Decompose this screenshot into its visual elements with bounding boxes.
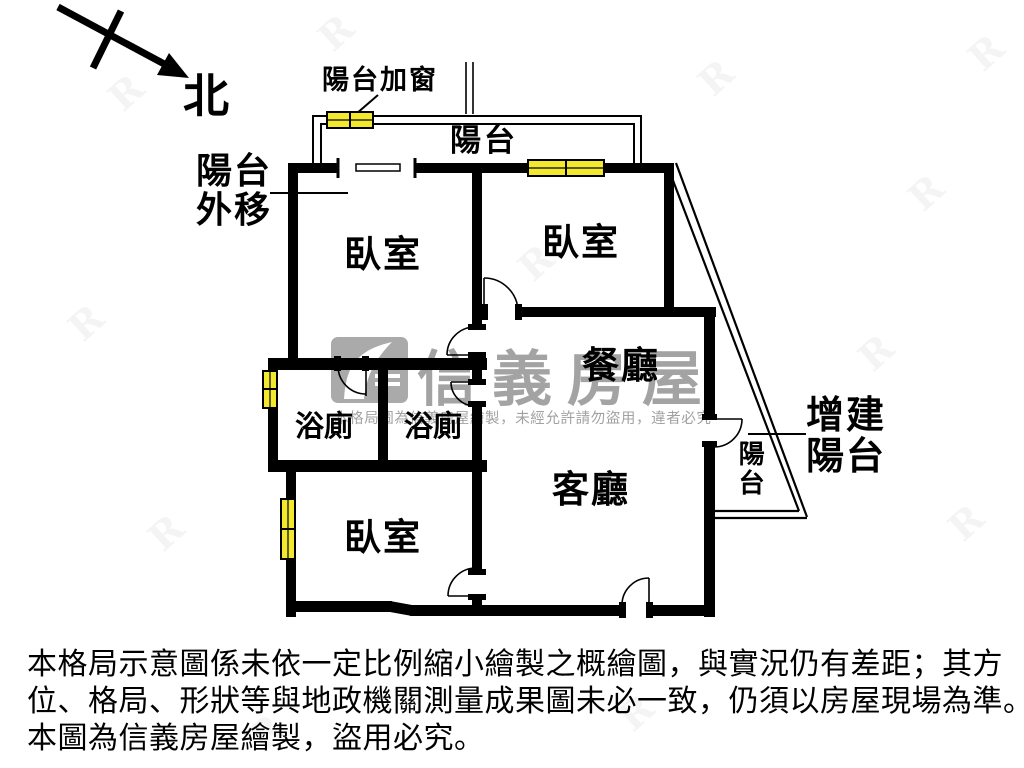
added-balcony-label: 增建陽台: [806, 396, 890, 478]
bedroom-top-right-label: 臥室: [542, 224, 620, 264]
duct-lines: [466, 62, 473, 114]
sliding-door: [338, 158, 415, 178]
bedroom-bottom-label: 臥室: [344, 519, 422, 559]
window-marker: [263, 371, 277, 408]
balcony-add-window-label: 陽台加窗: [322, 66, 438, 95]
disclaimer-line3: 本圖為信義房屋繪製，盜用必究。: [27, 720, 1024, 757]
window-marker: [528, 160, 604, 176]
side-balcony-label: 陽台: [735, 440, 763, 498]
window-marker: [327, 112, 373, 128]
window-marker: [281, 499, 295, 559]
floorplan-page: 信義房屋 本格局圖為信義房屋繪製，未經允許請勿盜用，違者必究: [0, 0, 1024, 768]
dining-room-label: 餐廳: [582, 347, 660, 387]
balcony-top-label: 陽台: [450, 124, 518, 157]
balcony-moved-out-label: 陽台外移: [196, 152, 276, 230]
disclaimer-line1: 本格局示意圖係未依一定比例縮小繪製之概繪圖，與實況仍有差距；其方: [27, 646, 1024, 683]
disclaimer-line2: 位、格局、形狀等與地政機關測量成果圖未必一致，仍須以房屋現場為準。: [27, 683, 1024, 720]
bath-right-label: 浴廁: [404, 412, 462, 443]
disclaimer-text: 本格局示意圖係未依一定比例縮小繪製之概繪圖，與實況仍有差距；其方 位、格局、形狀…: [27, 646, 1024, 757]
bath-left-label: 浴廁: [295, 412, 353, 443]
bedroom-top-left-label: 臥室: [344, 236, 422, 276]
walls: [268, 163, 716, 617]
north-arrow-icon: [58, 7, 189, 78]
living-room-label: 客廳: [552, 471, 630, 511]
north-label: 北: [183, 72, 229, 122]
